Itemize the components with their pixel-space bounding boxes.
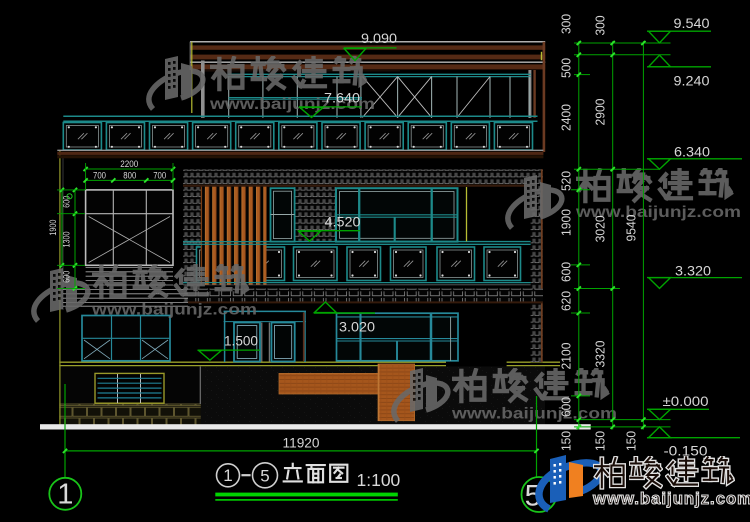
svg-text:9.540: 9.540	[674, 15, 710, 31]
svg-text:150: 150	[593, 431, 607, 451]
svg-text:1.500: 1.500	[224, 333, 258, 349]
svg-text:6.340: 6.340	[674, 144, 710, 160]
svg-text:700: 700	[93, 171, 106, 181]
svg-text:620: 620	[560, 291, 574, 311]
svg-text:3.020: 3.020	[339, 319, 375, 335]
svg-text:600: 600	[560, 262, 574, 282]
svg-text:150: 150	[624, 431, 638, 451]
svg-text:300: 300	[593, 15, 607, 35]
svg-text:3320: 3320	[593, 340, 607, 367]
svg-text:7.640: 7.640	[324, 90, 360, 106]
svg-text:600: 600	[560, 397, 574, 417]
svg-text:3.320: 3.320	[675, 262, 711, 278]
svg-text:500: 500	[560, 58, 574, 78]
svg-text:4.520: 4.520	[325, 214, 361, 230]
svg-text:2200: 2200	[120, 159, 138, 169]
svg-text:1:100: 1:100	[357, 470, 401, 490]
svg-text:600: 600	[61, 271, 72, 283]
svg-text:2900: 2900	[593, 98, 607, 125]
svg-text:520: 520	[560, 171, 574, 191]
svg-text:www.baijunjz.com: www.baijunjz.com	[592, 490, 750, 508]
svg-text:1: 1	[223, 466, 232, 485]
svg-text:2100: 2100	[560, 342, 574, 369]
svg-text:www.baijunjz.com: www.baijunjz.com	[91, 302, 257, 319]
svg-text:3020: 3020	[593, 215, 607, 242]
svg-text:800: 800	[123, 171, 136, 181]
svg-text:9.240: 9.240	[674, 73, 710, 89]
svg-text:11920: 11920	[283, 436, 320, 451]
svg-text:5: 5	[260, 467, 269, 486]
svg-text:1: 1	[57, 479, 73, 511]
svg-text:1900: 1900	[48, 220, 59, 236]
svg-text:1900: 1900	[560, 209, 574, 236]
svg-text:700: 700	[153, 171, 166, 181]
svg-text:±0.000: ±0.000	[663, 393, 709, 409]
svg-text:1300: 1300	[61, 232, 72, 248]
svg-text:9540: 9540	[624, 214, 638, 241]
svg-text:300: 300	[560, 14, 574, 34]
svg-text:150: 150	[560, 431, 574, 451]
svg-text:2400: 2400	[560, 104, 574, 131]
svg-text:9.090: 9.090	[361, 30, 397, 46]
